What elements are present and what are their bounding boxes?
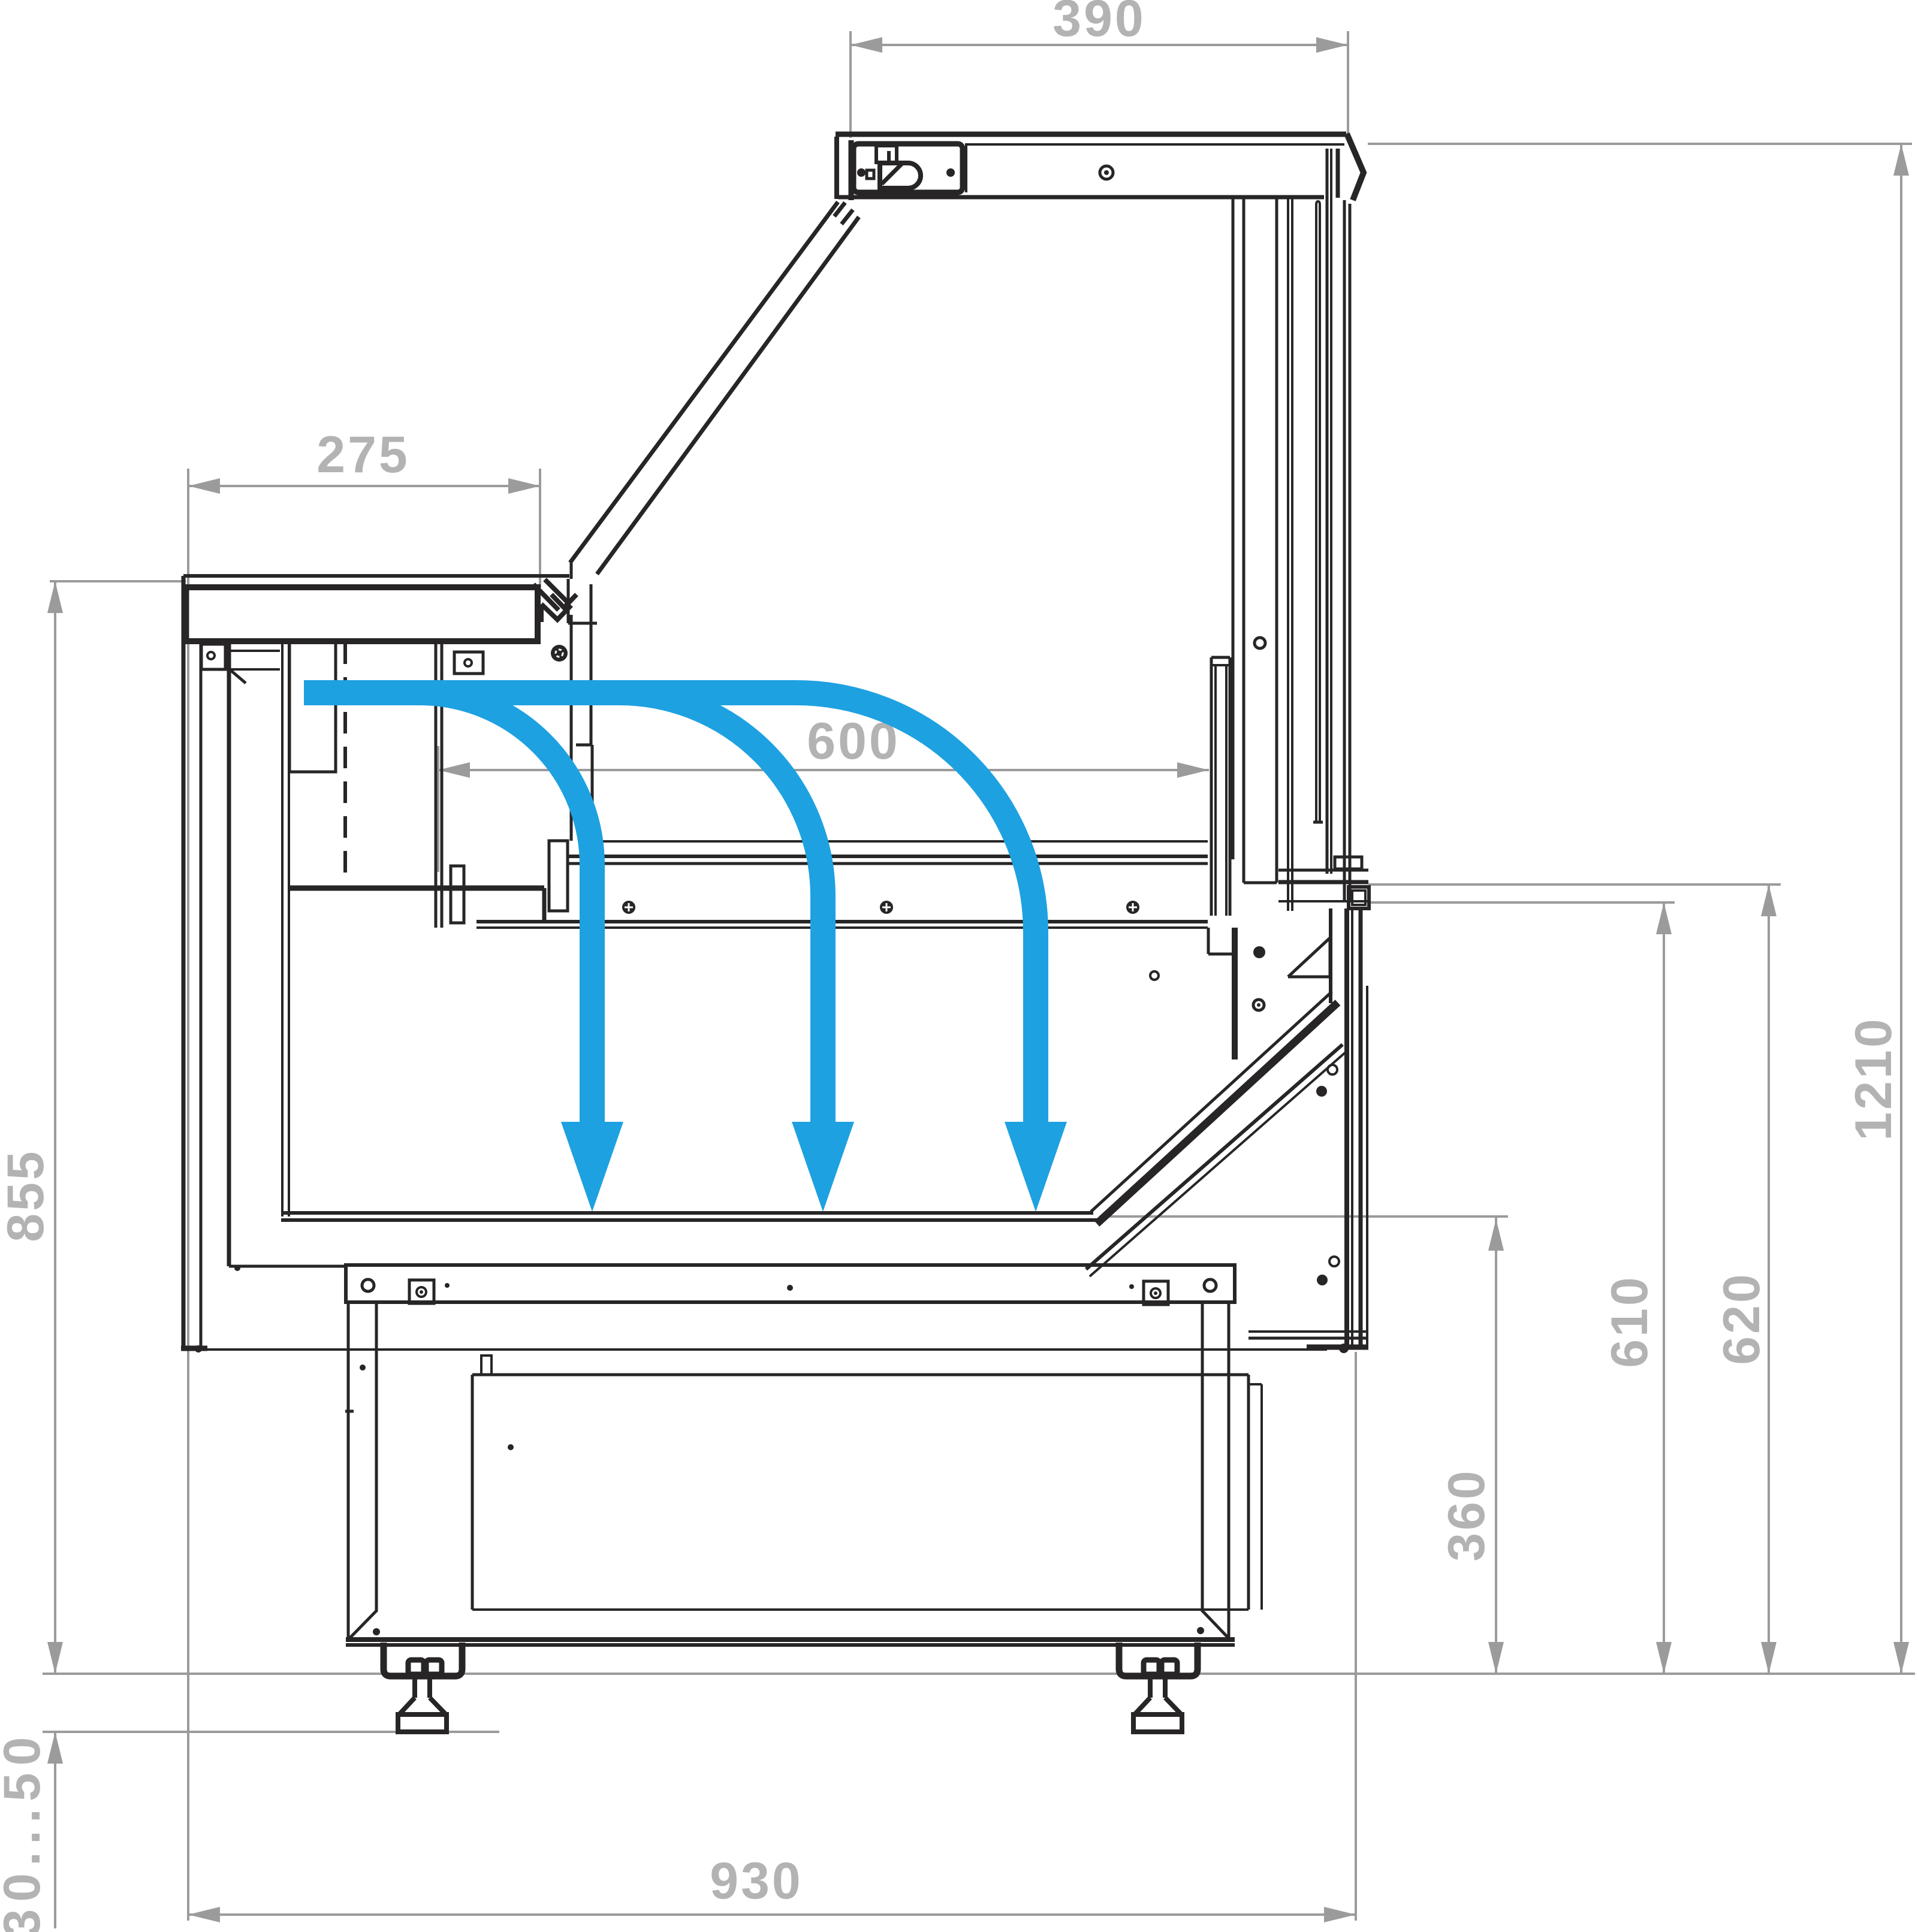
svg-text:610: 610	[1601, 1275, 1658, 1368]
svg-text:1210: 1210	[1845, 1016, 1902, 1140]
svg-text:930: 930	[710, 1852, 803, 1910]
svg-text:620: 620	[1713, 1272, 1771, 1365]
svg-text:275: 275	[316, 426, 410, 484]
svg-text:30...50: 30...50	[0, 1730, 51, 1932]
svg-text:360: 360	[1438, 1468, 1495, 1562]
svg-text:855: 855	[0, 1149, 55, 1242]
svg-text:390: 390	[1053, 0, 1146, 47]
